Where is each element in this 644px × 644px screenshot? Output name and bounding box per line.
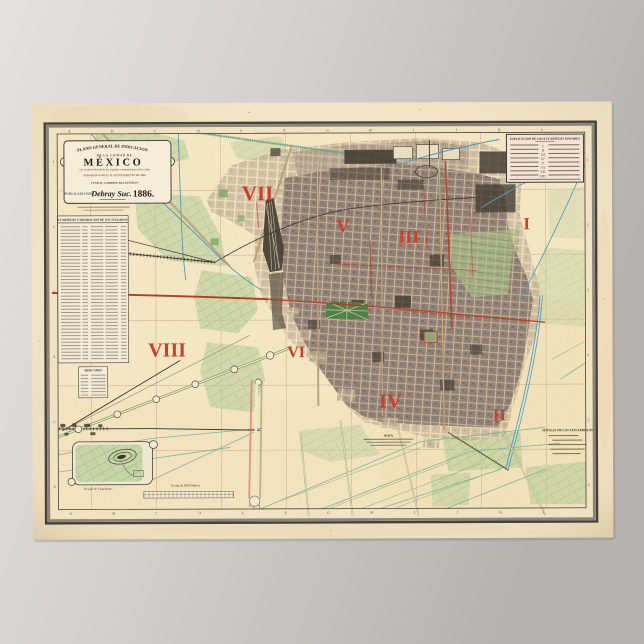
svg-text:Debray Suc.: Debray Suc. bbox=[90, 189, 131, 198]
svg-text:4: 4 bbox=[587, 352, 589, 357]
svg-text:H: H bbox=[369, 128, 372, 133]
svg-text:6: 6 bbox=[588, 482, 590, 487]
svg-text:K: K bbox=[499, 509, 502, 514]
svg-text:B: B bbox=[111, 129, 114, 134]
svg-text:4: 4 bbox=[53, 354, 55, 359]
svg-text:MERCADOS: MERCADOS bbox=[84, 368, 102, 372]
svg-text:VIII: VIII bbox=[148, 339, 186, 361]
svg-text:3: 3 bbox=[587, 287, 589, 292]
svg-text:Escala de 5000 Métros: Escala de 5000 Métros bbox=[171, 483, 201, 487]
svg-text:Bosque de Chapultepec: Bosque de Chapultepec bbox=[84, 487, 113, 491]
svg-text:IV: IV bbox=[379, 391, 402, 413]
svg-text:K: K bbox=[498, 127, 501, 132]
svg-text:5: 5 bbox=[587, 417, 589, 422]
svg-text:II: II bbox=[493, 405, 507, 424]
svg-text:C: C bbox=[154, 128, 157, 133]
svg-text:VII: VII bbox=[242, 181, 274, 205]
svg-text:EXPLICACION DE LOS 8 CUARTELES: EXPLICACION DE LOS 8 CUARTELES MAYORES bbox=[510, 137, 580, 141]
svg-text:G: G bbox=[326, 128, 329, 133]
svg-text:1886.: 1886. bbox=[133, 190, 154, 200]
svg-text:5: 5 bbox=[53, 419, 55, 424]
svg-text:B: B bbox=[112, 511, 115, 516]
svg-text:H: H bbox=[370, 510, 373, 515]
svg-text:III: III bbox=[398, 227, 419, 247]
svg-text:A: A bbox=[69, 511, 72, 516]
svg-text:PUBLICADO POR: PUBLICADO POR bbox=[64, 192, 93, 196]
svg-text:I: I bbox=[523, 214, 530, 233]
svg-text:VI: VI bbox=[287, 344, 305, 361]
svg-text:1: 1 bbox=[586, 157, 588, 162]
svg-text:A: A bbox=[68, 129, 71, 134]
svg-text:G: G bbox=[327, 510, 330, 515]
svg-text:V: V bbox=[336, 216, 349, 236]
svg-text:APROBADO POR EL H. AYUNTAMIENT: APROBADO POR EL H. AYUNTAMIENTO DE 1885 bbox=[83, 174, 146, 177]
svg-text:2: 2 bbox=[587, 222, 589, 227]
svg-text:3: 3 bbox=[53, 289, 55, 294]
svg-text:VIII: VIII bbox=[539, 174, 546, 178]
svg-text:NOTA: NOTA bbox=[384, 434, 394, 438]
svg-text:D: D bbox=[198, 510, 201, 515]
svg-text:D: D bbox=[197, 128, 200, 133]
svg-text:C: C bbox=[155, 511, 158, 516]
svg-text:1: 1 bbox=[52, 159, 54, 164]
svg-text:6: 6 bbox=[54, 484, 56, 489]
svg-text:CUARTELES Y SEPARACION DE SUS: CUARTELES Y SEPARACION DE SUS JUZGADOS bbox=[58, 218, 128, 222]
svg-text:Y POR EL GOBIERNO DEL DISTRITO: Y POR EL GOBIERNO DEL DISTRITO bbox=[91, 182, 139, 185]
svg-text:MÉXICO: MÉXICO bbox=[83, 156, 143, 168]
svg-text:2: 2 bbox=[53, 224, 55, 229]
svg-text:Con la nueva división de los c: Con la nueva división de los cuarteles y… bbox=[79, 168, 151, 171]
svg-text:SEÑALES DE LAS VIAS FERREAS: SEÑALES DE LAS VIAS FERREAS bbox=[542, 427, 593, 432]
